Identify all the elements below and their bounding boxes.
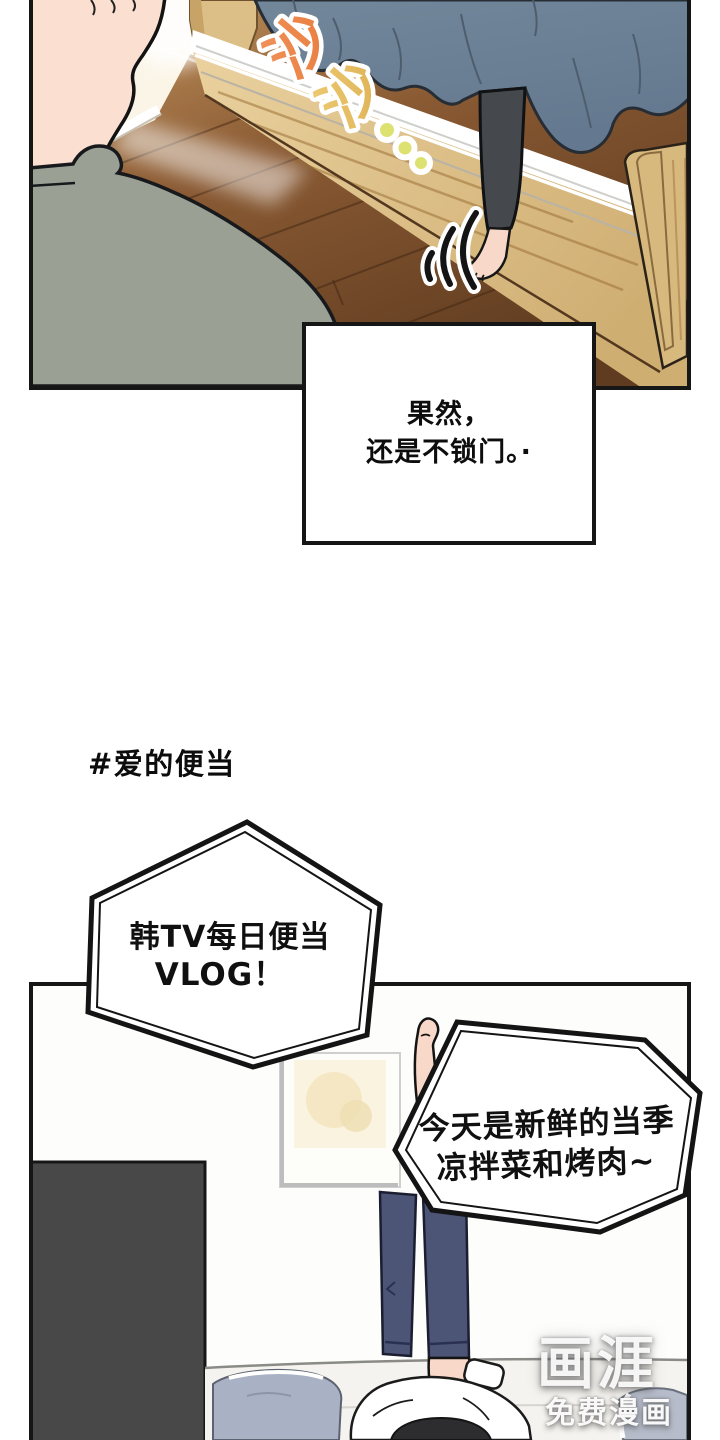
comic-page: 沙 沙 果然， 还是不锁门。· #爱的便当 [0,0,720,1440]
speech-bubble-vlog: 韩TV每日便当 VLOG！ [75,813,395,1075]
bubble1-line-1: 韩TV每日便当 [130,920,331,955]
caption-box: 果然， 还是不锁门。· [302,322,596,545]
bubble2-line-2: 凉拌菜和烤肉~ [436,1143,656,1187]
pillow-left [213,1370,341,1440]
wardrobe [33,1162,205,1440]
speech-bubble-menu: 今天是新鲜的当季 凉拌菜和烤肉~ [385,1005,707,1237]
watermark-subtitle: 免费漫画 [545,1388,673,1432]
caption-line-1: 果然， [407,396,491,434]
bubble1-line-2: VLOG！ [155,957,285,993]
hashtag-text: #爱的便当 [88,741,236,783]
caption-line-2: 还是不锁门。· [366,434,532,472]
